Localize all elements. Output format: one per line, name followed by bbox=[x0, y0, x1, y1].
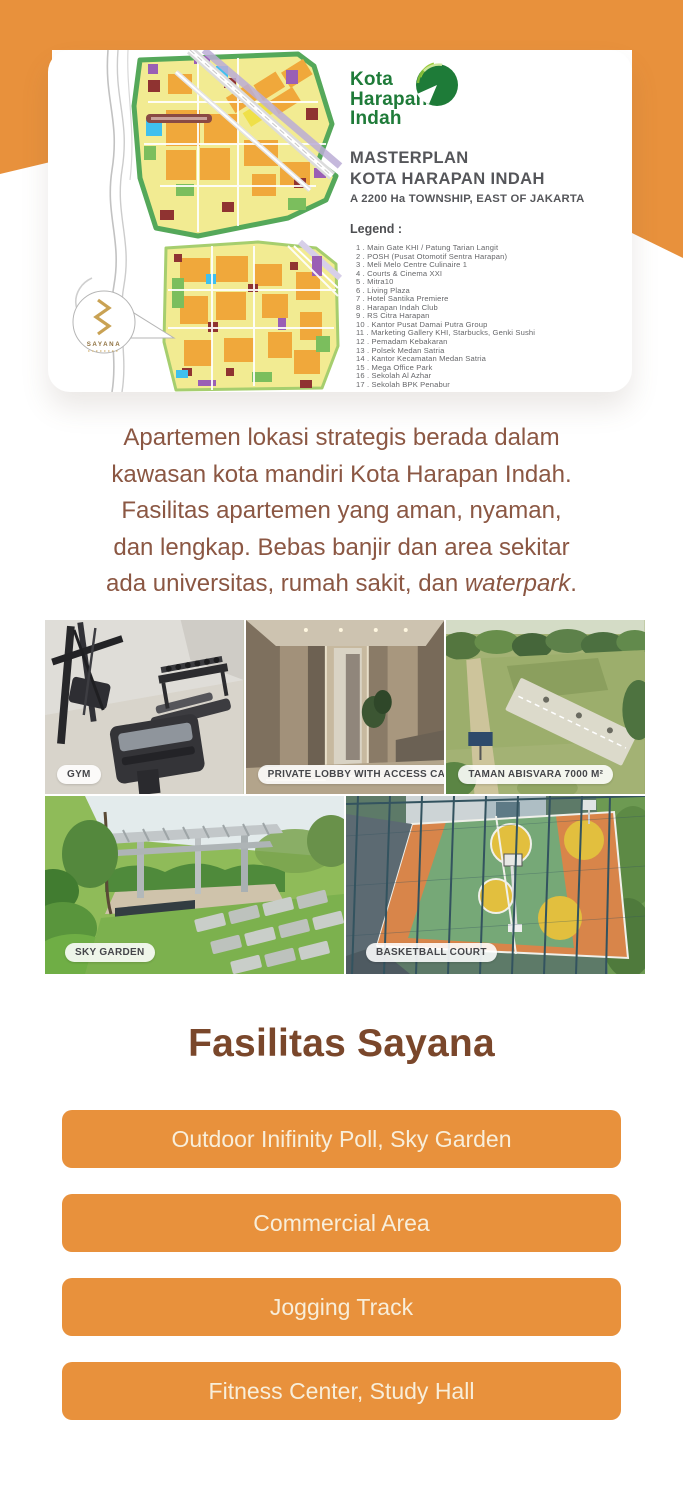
left-orange-ribbon bbox=[0, 50, 52, 174]
khi-logo-text: Kota Harapan Indah bbox=[350, 70, 626, 129]
masterplan-title-line2: KOTA HARAPAN INDAH bbox=[350, 169, 626, 190]
sky-garden-photo: SKY GARDEN bbox=[45, 796, 344, 974]
khi-logo-line3: Indah bbox=[350, 109, 626, 129]
description-line: ada universitas, rumah sakit, dan waterp… bbox=[0, 566, 683, 603]
facilities-button-list: Outdoor Inifinity Poll, Sky Garden Comme… bbox=[62, 1110, 621, 1420]
facility-photo-grid: GYM bbox=[45, 620, 645, 974]
taman-abisvara-photo: TAMAN ABISVARA 7000 M² bbox=[446, 620, 645, 794]
khi-logo: Kota Harapan Indah bbox=[350, 70, 626, 132]
photo-label-private-lobby: PRIVATE LOBBY WITH ACCESS CARD bbox=[258, 765, 445, 784]
sayana-landing-page: SAYANA Kota Harapan Indah bbox=[0, 0, 683, 1492]
description-suffix: . bbox=[570, 570, 577, 597]
description-italic-word: waterpark bbox=[465, 570, 570, 597]
photo-label-sky-garden: SKY GARDEN bbox=[65, 943, 155, 962]
basketball-court-photo: BASKETBALL COURT bbox=[346, 796, 645, 974]
gym-photo: GYM bbox=[45, 620, 244, 794]
top-orange-banner bbox=[0, 0, 683, 50]
photo-label-taman-abisvara: TAMAN ABISVARA 7000 M² bbox=[458, 765, 613, 784]
map-road-label bbox=[146, 114, 212, 123]
khi-logo-leaf-icon bbox=[414, 62, 460, 108]
legend-item: 17 . Sekolah BPK Penabur bbox=[356, 381, 626, 390]
sayana-map-callout: SAYANA bbox=[73, 291, 174, 353]
legend-list: 1 . Main Gate KHI / Patung Tarian Langit… bbox=[356, 244, 626, 389]
masterplan-title-line1: MASTERPLAN bbox=[350, 148, 626, 169]
description-line: Fasilitas apartemen yang aman, nyaman, bbox=[0, 493, 683, 530]
description-line: dan lengkap. Bebas banjir dan area sekit… bbox=[0, 530, 683, 567]
right-orange-ribbon bbox=[632, 50, 683, 258]
facility-button-outdoor-pool-sky-garden[interactable]: Outdoor Inifinity Poll, Sky Garden bbox=[62, 1110, 621, 1168]
private-lobby-photo: PRIVATE LOBBY WITH ACCESS CARD bbox=[246, 620, 445, 794]
facilities-heading: Fasilitas Sayana bbox=[0, 1020, 683, 1068]
khi-logo-line2: Harapan bbox=[350, 90, 626, 110]
sayana-callout-brand: SAYANA bbox=[87, 341, 122, 348]
description-line: Apartemen lokasi strategis berada dalam bbox=[0, 420, 683, 457]
facility-button-jogging-track[interactable]: Jogging Track bbox=[62, 1278, 621, 1336]
masterplan-map: SAYANA bbox=[48, 50, 343, 392]
masterplan-card: SAYANA Kota Harapan Indah bbox=[48, 50, 632, 392]
masterplan-subtitle: A 2200 Ha TOWNSHIP, EAST OF JAKARTA bbox=[350, 193, 626, 205]
photo-label-gym: GYM bbox=[57, 765, 101, 784]
facility-button-fitness-center-study-hall[interactable]: Fitness Center, Study Hall bbox=[62, 1362, 621, 1420]
masterplan-info: Kota Harapan Indah MASTERPLAN KOTA HARAP… bbox=[350, 70, 626, 389]
legend-item: 4 . Courts & Cinema XXI bbox=[356, 270, 626, 279]
description-line: kawasan kota mandiri Kota Harapan Indah. bbox=[0, 457, 683, 494]
photo-label-basketball-court: BASKETBALL COURT bbox=[366, 943, 497, 962]
description-line5-prefix: ada universitas, rumah sakit, dan bbox=[106, 570, 465, 597]
masterplan-title: MASTERPLAN KOTA HARAPAN INDAH bbox=[350, 148, 626, 190]
legend-title: Legend : bbox=[350, 222, 626, 236]
khi-logo-line1: Kota bbox=[350, 70, 626, 90]
facility-button-commercial-area[interactable]: Commercial Area bbox=[62, 1194, 621, 1252]
location-description: Apartemen lokasi strategis berada dalam … bbox=[0, 420, 683, 603]
